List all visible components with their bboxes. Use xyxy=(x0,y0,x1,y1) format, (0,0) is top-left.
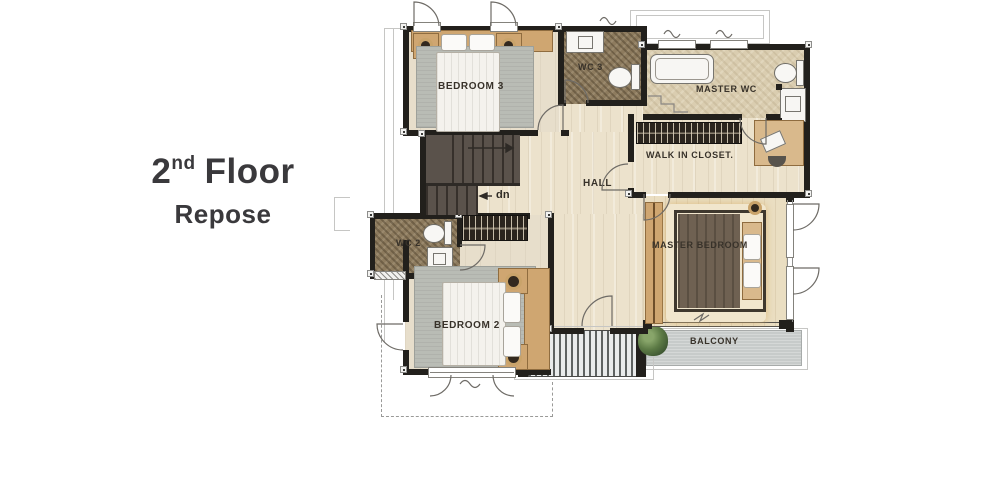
bedroom2-pillow xyxy=(503,292,521,323)
plan-title: 2ndFloor Repose xyxy=(138,152,308,230)
floor-word: Floor xyxy=(205,152,295,191)
wc2-window xyxy=(374,271,406,280)
floor-ordinal: nd xyxy=(171,153,195,174)
wall-west-bedroom3 xyxy=(403,26,409,136)
bedroom2-window-mullion xyxy=(430,372,514,373)
wall-joint xyxy=(367,211,374,218)
wall-wc3-south-b xyxy=(586,100,646,106)
setback-dashed-left xyxy=(381,295,382,417)
dim-bracket-left-v xyxy=(334,197,335,231)
floor-subtitle: Repose xyxy=(138,199,308,230)
wall-joint xyxy=(805,190,812,197)
setback-dashed-bottom xyxy=(381,416,553,417)
bedroom2-label: BEDROOM 2 xyxy=(434,320,500,331)
masterwc-toilet-tank xyxy=(796,60,804,86)
floor-title: 2ndFloor xyxy=(138,152,308,192)
wall-joint xyxy=(638,41,645,48)
masterwc-toilet-icon xyxy=(774,63,797,83)
floor-plan-canvas: 2ndFloor Repose xyxy=(0,0,1000,500)
dim-bracket-left-t xyxy=(334,197,350,198)
post-balcony-e xyxy=(779,320,788,329)
hall-label: HALL xyxy=(583,178,612,189)
wall-wc3-east xyxy=(641,26,647,106)
wall-joint xyxy=(555,23,562,30)
wc3-toilet-icon xyxy=(608,67,632,88)
masterwc-window-left xyxy=(658,40,696,49)
dim-bracket-left-b xyxy=(334,230,350,231)
masterwc-sink-icon xyxy=(785,96,801,112)
wall-bedroom3-south-b xyxy=(561,130,569,136)
masterbr-window-lower xyxy=(786,266,794,320)
balcony-door-track-2 xyxy=(650,326,782,327)
wall-joint xyxy=(400,128,407,135)
wall-bedroom2-west-a xyxy=(403,240,409,322)
wc3-label: WC 3 xyxy=(578,62,603,72)
bedroom3-pillow xyxy=(441,34,467,51)
roof-outline-left-1 xyxy=(384,28,385,342)
window-squiggle-icon xyxy=(460,381,480,388)
bedroom2-pillow xyxy=(503,326,521,357)
wall-joint xyxy=(367,270,374,277)
wc2-sink-icon xyxy=(433,253,446,265)
wc2-toilet-icon xyxy=(423,224,445,243)
wall-closet-west-a xyxy=(628,114,634,162)
bathtub-inner xyxy=(655,58,709,80)
stairs-dn-label: dn xyxy=(496,189,510,201)
wc3-toilet-tank xyxy=(631,64,640,90)
window-arc xyxy=(493,375,514,396)
wall-wc3-west xyxy=(558,30,564,106)
window-arc xyxy=(430,375,451,396)
wall-joint xyxy=(625,190,632,197)
wall-joint xyxy=(545,211,552,218)
roof-outline-top-right-inner xyxy=(636,15,764,39)
master-wc-label: MASTER WC xyxy=(696,84,757,94)
wall-wc3-south-a xyxy=(558,100,566,106)
wall-masterwc-south-a xyxy=(643,114,742,120)
balcony-door-track-1 xyxy=(650,322,782,323)
lamp-icon xyxy=(505,273,522,290)
staircase-rail xyxy=(426,183,520,186)
bedroom2-closet xyxy=(462,215,528,241)
wc3-sink-icon xyxy=(578,36,593,49)
closet-hanger-rail xyxy=(636,122,742,144)
lamp-icon xyxy=(748,201,762,215)
wall-joint xyxy=(400,366,407,373)
wall-joint xyxy=(418,130,425,137)
vent-squiggle-icon xyxy=(600,18,616,25)
wall-hall-south-a xyxy=(548,328,584,334)
master-bed-duvet xyxy=(678,214,740,308)
bedroom3-pillow xyxy=(469,34,495,51)
masterwc-stub-a xyxy=(776,84,782,90)
wall-joint xyxy=(805,41,812,48)
wc2-toilet-tank xyxy=(444,221,452,245)
masterwc-window-right xyxy=(710,40,748,49)
wall-joint xyxy=(400,23,407,30)
window-arc xyxy=(793,268,819,294)
bedroom3-window-right xyxy=(490,22,518,32)
window-arc xyxy=(793,204,819,230)
bedroom3-window-left xyxy=(413,22,441,32)
walk-in-closet-label: WALK IN CLOSET. xyxy=(646,150,734,160)
balcony-label: BALCONY xyxy=(690,336,739,346)
bedroom3-bed xyxy=(436,52,500,132)
bedroom3-label: BEDROOM 3 xyxy=(438,81,504,92)
masterbr-window-upper xyxy=(786,204,794,258)
master-bedroom-wardrobe xyxy=(645,202,663,324)
master-bedroom-label: MASTER BEDROOM xyxy=(652,240,748,250)
wc2-label: WC 2 xyxy=(396,238,421,248)
staircase-lower-run xyxy=(426,185,478,215)
staircase-upper-treads xyxy=(452,135,520,185)
floor-number: 2 xyxy=(151,152,171,191)
hall-floor-lower xyxy=(551,214,646,330)
master-bed-pillow xyxy=(743,262,761,288)
setback-dashed-right xyxy=(552,382,553,417)
